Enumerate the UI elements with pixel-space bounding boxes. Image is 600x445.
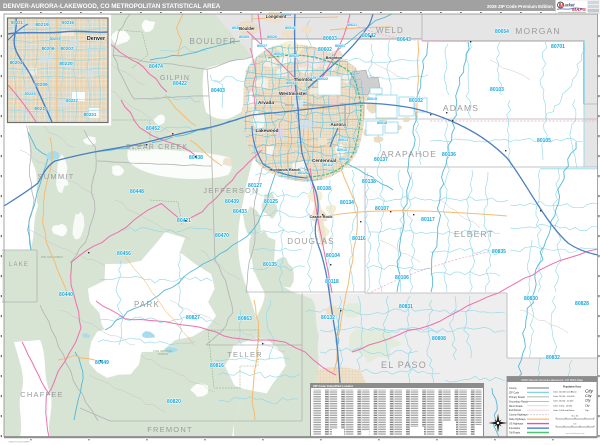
svg-text:80654: 80654 xyxy=(495,29,509,35)
svg-text:CHAFFEE: CHAFFEE xyxy=(20,390,63,399)
svg-text:Boulder: Boulder xyxy=(239,26,255,31)
svg-text:Cities 25,000 - 100,000: Cities 25,000 - 100,000 xyxy=(553,395,575,398)
svg-text:80026: 80026 xyxy=(267,35,277,39)
svg-text:Secondary Roads: Secondary Roads xyxy=(509,400,529,403)
svg-text:City: City xyxy=(585,403,590,407)
svg-text:80116: 80116 xyxy=(352,236,366,242)
svg-text:Centennial: Centennial xyxy=(312,158,336,163)
svg-text:Highlands Ranch: Highlands Ranch xyxy=(269,168,301,172)
svg-text:ARAPAHOE: ARAPAHOE xyxy=(381,149,437,159)
svg-text:80820: 80820 xyxy=(167,399,181,405)
svg-text:80027: 80027 xyxy=(257,44,267,48)
svg-text:80827: 80827 xyxy=(186,315,200,321)
svg-text:www.marketmaps.com: www.marketmaps.com xyxy=(565,432,584,435)
svg-text:Denver: Denver xyxy=(87,36,106,42)
svg-text:LAKE: LAKE xyxy=(9,262,29,268)
svg-text:80105: 80105 xyxy=(537,138,551,144)
svg-text:BOULDER: BOULDER xyxy=(189,37,236,46)
svg-text:80106: 80106 xyxy=(395,275,409,281)
svg-text:80830: 80830 xyxy=(524,296,538,302)
svg-text:Km: Km xyxy=(574,424,577,426)
svg-text:FREMONT: FREMONT xyxy=(147,425,192,434)
svg-text:80816: 80816 xyxy=(210,363,224,369)
svg-text:2026 ZIP Code Premium Edition: 2026 ZIP Code Premium Edition xyxy=(487,4,553,9)
svg-text:80828: 80828 xyxy=(575,301,589,307)
svg-text:©MMXXVI MarketMAPS: ©MMXXVI MarketMAPS xyxy=(8,441,30,444)
svg-text:80223: 80223 xyxy=(24,91,36,96)
svg-text:80015: 80015 xyxy=(337,148,347,152)
svg-text:80602: 80602 xyxy=(318,47,332,53)
svg-text:ADAMS: ADAMS xyxy=(443,103,479,113)
svg-text:County: County xyxy=(509,387,517,390)
svg-text:Primary Roads: Primary Roads xyxy=(509,396,526,399)
svg-text:80209: 80209 xyxy=(34,82,48,88)
svg-text:80831: 80831 xyxy=(399,304,413,310)
svg-text:JEFFERSON: JEFFERSON xyxy=(203,186,258,195)
svg-text:PARK: PARK xyxy=(134,300,160,309)
svg-text:Minor Roads: Minor Roads xyxy=(509,405,523,408)
svg-text:80118: 80118 xyxy=(325,279,339,285)
svg-text:arket: arket xyxy=(565,2,576,7)
svg-text:80135: 80135 xyxy=(263,262,277,268)
svg-text:80023: 80023 xyxy=(289,54,299,58)
svg-text:Arvada: Arvada xyxy=(258,100,274,105)
svg-text:80108: 80108 xyxy=(317,186,331,192)
svg-text:EL PASO: EL PASO xyxy=(381,360,427,370)
svg-text:80222: 80222 xyxy=(66,98,78,103)
svg-text:Interstates: Interstates xyxy=(509,427,521,430)
svg-text:DOUGLAS: DOUGLAS xyxy=(287,237,335,246)
svg-text:80125: 80125 xyxy=(264,199,278,205)
svg-text:80440: 80440 xyxy=(59,292,73,298)
svg-text:Cities 10,000 - 25,000: Cities 10,000 - 25,000 xyxy=(553,400,574,403)
svg-text:80016: 80016 xyxy=(339,157,349,161)
svg-text:80835: 80835 xyxy=(492,249,506,255)
svg-text:80104: 80104 xyxy=(326,253,340,259)
svg-text:US Highways: US Highways xyxy=(509,423,524,426)
svg-text:ZIP Code Index/Part Locator: ZIP Code Index/Part Locator xyxy=(313,384,354,388)
svg-text:80134: 80134 xyxy=(340,200,354,206)
svg-text:80103: 80103 xyxy=(490,87,504,93)
svg-text:80516: 80516 xyxy=(285,26,295,30)
svg-text:80013: 80013 xyxy=(338,138,348,142)
svg-text:80019: 80019 xyxy=(367,97,377,101)
svg-text:Brighton: Brighton xyxy=(326,55,343,60)
svg-text:80474: 80474 xyxy=(149,64,163,70)
svg-text:80448: 80448 xyxy=(130,189,144,195)
svg-text:Longmont: Longmont xyxy=(266,14,287,19)
svg-text:ZIP Code: ZIP Code xyxy=(509,391,520,394)
svg-text:80132: 80132 xyxy=(321,315,335,321)
svg-text:2026 Denver-Aurora-Lakewood, C: 2026 Denver-Aurora-Lakewood, CO MSA Map xyxy=(521,378,583,382)
svg-text:80107: 80107 xyxy=(375,206,389,212)
svg-text:80603: 80603 xyxy=(323,36,337,42)
svg-text:80207: 80207 xyxy=(61,46,74,51)
svg-text:80018: 80018 xyxy=(377,121,387,125)
svg-text:80456: 80456 xyxy=(117,251,131,257)
svg-text:80449: 80449 xyxy=(95,360,109,366)
svg-text:State Highways: State Highways xyxy=(509,418,526,421)
svg-text:80102: 80102 xyxy=(409,98,423,104)
svg-text:80220: 80220 xyxy=(59,61,73,67)
svg-text:80112: 80112 xyxy=(323,163,333,167)
svg-text:80643: 80643 xyxy=(397,37,411,43)
svg-text:SUMMIT: SUMMIT xyxy=(38,172,75,181)
svg-text:80452: 80452 xyxy=(146,126,160,132)
svg-text:80206: 80206 xyxy=(42,46,55,51)
svg-text:Cities 100,000 and Above: Cities 100,000 and Above xyxy=(553,391,578,394)
svg-text:County Highways: County Highways xyxy=(509,414,528,417)
svg-text:80231: 80231 xyxy=(84,112,97,117)
svg-text:PIKE NATL FOREST: PIKE NATL FOREST xyxy=(41,256,64,259)
svg-text:Toll Roads: Toll Roads xyxy=(509,432,521,435)
svg-text:80204: 80204 xyxy=(10,60,23,65)
svg-text:TELLER: TELLER xyxy=(227,350,263,359)
svg-text:DENVER-AURORA-LAKEWOOD, CO MET: DENVER-AURORA-LAKEWOOD, CO METROPOLITAN … xyxy=(3,3,221,10)
svg-text:Thornton: Thornton xyxy=(294,77,313,82)
svg-text:Cities 1,000 - 10,000: Cities 1,000 - 10,000 xyxy=(553,404,573,407)
svg-text:80832: 80832 xyxy=(546,355,560,361)
svg-text:80701: 80701 xyxy=(551,44,565,50)
svg-text:80117: 80117 xyxy=(421,217,435,223)
svg-text:80219: 80219 xyxy=(35,22,49,28)
svg-text:ELBERT: ELBERT xyxy=(454,229,494,239)
svg-text:80421: 80421 xyxy=(177,218,191,224)
svg-text:80808: 80808 xyxy=(432,336,446,342)
svg-text:Stat. Mi.: Stat. Mi. xyxy=(571,415,579,418)
svg-text:City: City xyxy=(585,389,594,394)
svg-text:Cities 1,000 and Below: Cities 1,000 and Below xyxy=(553,409,575,412)
svg-text:80305: 80305 xyxy=(239,35,249,39)
svg-text:80210: 80210 xyxy=(34,106,48,112)
svg-text:80642: 80642 xyxy=(362,33,376,39)
svg-text:80136: 80136 xyxy=(442,152,456,158)
svg-text:80433: 80433 xyxy=(233,209,247,215)
svg-text:MORGAN: MORGAN xyxy=(515,26,560,36)
svg-text:City: City xyxy=(585,399,591,403)
svg-text:CLEAR CREEK: CLEAR CREEK xyxy=(126,144,189,151)
svg-text:80470: 80470 xyxy=(215,233,229,239)
svg-text:80438: 80438 xyxy=(189,155,203,161)
svg-text:FOREST: FOREST xyxy=(158,352,169,356)
svg-text:80601: 80601 xyxy=(335,44,345,48)
svg-text:80403: 80403 xyxy=(211,88,225,94)
svg-text:Lakewood: Lakewood xyxy=(256,128,279,133)
svg-text:80022: 80022 xyxy=(318,77,328,81)
svg-text:80205: 80205 xyxy=(49,36,61,41)
svg-text:80439: 80439 xyxy=(225,199,239,205)
svg-text:City: City xyxy=(585,394,593,398)
svg-text:Aurora: Aurora xyxy=(330,122,346,127)
svg-text:Castle Rock: Castle Rock xyxy=(310,214,334,219)
svg-text:GILPIN: GILPIN xyxy=(160,75,190,82)
svg-text:80138: 80138 xyxy=(362,179,376,185)
svg-text:80621: 80621 xyxy=(347,23,357,27)
svg-text:80863: 80863 xyxy=(238,316,252,322)
svg-text:Westminster: Westminster xyxy=(279,91,307,96)
svg-text:Population Keys: Population Keys xyxy=(563,386,582,389)
svg-text:80216: 80216 xyxy=(62,20,74,25)
svg-text:80221: 80221 xyxy=(11,20,23,25)
svg-text:Exit Ramps: Exit Ramps xyxy=(509,409,522,412)
svg-text:80020: 80020 xyxy=(274,52,284,56)
svg-text:WELD: WELD xyxy=(376,26,404,35)
